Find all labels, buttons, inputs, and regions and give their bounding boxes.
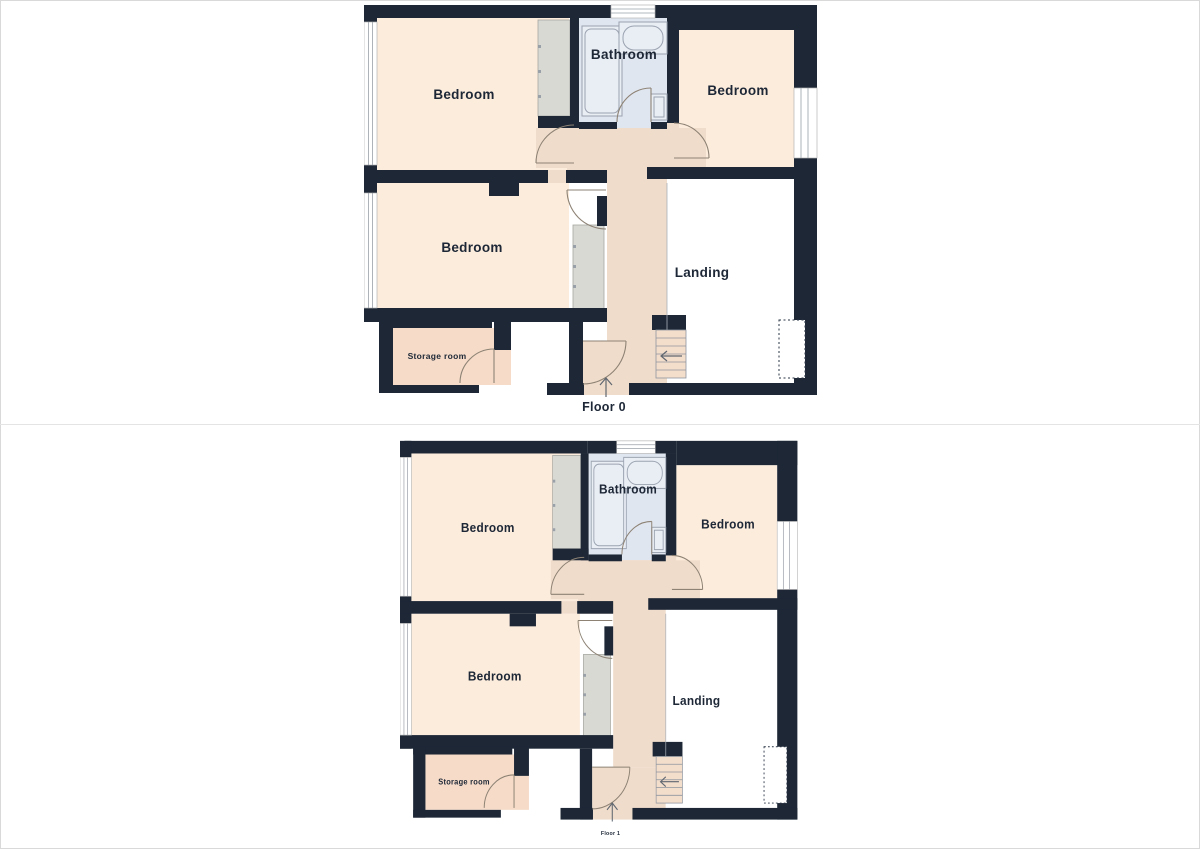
hallway-doorway bbox=[666, 555, 677, 599]
window-left-bottom bbox=[400, 623, 411, 735]
window-right bbox=[777, 521, 797, 589]
room-label-bedroom-top-left: Bedroom bbox=[433, 87, 494, 102]
floor-plan: Bedroom Bathroom Bedroom Bedroom Landing… bbox=[364, 0, 820, 415]
sink-icon bbox=[652, 527, 666, 552]
floor-panel-0: Bedroom Bathroom Bedroom Bedroom Landing… bbox=[0, 0, 1200, 425]
storage-door-zone bbox=[494, 350, 511, 385]
stairs bbox=[656, 756, 682, 803]
room-label-storage: Storage room bbox=[438, 777, 490, 786]
closet-mid bbox=[583, 654, 610, 737]
closet-top bbox=[538, 20, 570, 116]
stairs bbox=[656, 330, 686, 378]
hallway-column bbox=[613, 560, 666, 767]
floor-plan: Bedroom Bathroom Bedroom Bedroom Landing… bbox=[400, 436, 800, 839]
closet-top bbox=[553, 455, 581, 548]
room-label-landing: Landing bbox=[673, 693, 721, 708]
window-left-top bbox=[364, 22, 377, 165]
window-left-bottom bbox=[364, 193, 377, 308]
dashed-void-outline bbox=[764, 747, 787, 803]
room-label-bedroom-top-left: Bedroom bbox=[461, 521, 515, 536]
room-label-bedroom-mid-left: Bedroom bbox=[441, 240, 502, 255]
window-top bbox=[611, 5, 655, 18]
floor-label: Floor 1 bbox=[601, 831, 620, 837]
room-label-bedroom-mid-left: Bedroom bbox=[468, 669, 522, 684]
hallway-doorway bbox=[667, 123, 679, 168]
storage-door-zone bbox=[514, 776, 529, 810]
window-top bbox=[617, 441, 656, 454]
room-label-bedroom-top-right: Bedroom bbox=[707, 83, 768, 98]
floor-label: Floor 0 bbox=[582, 400, 626, 414]
room-label-landing: Landing bbox=[675, 265, 730, 280]
floor-panel-1: Bedroom Bathroom Bedroom Bedroom Landing… bbox=[0, 425, 1200, 848]
sink-icon bbox=[651, 94, 667, 120]
room-label-bathroom: Bathroom bbox=[591, 47, 657, 62]
room-label-bathroom: Bathroom bbox=[599, 482, 657, 497]
window-left-top bbox=[400, 457, 411, 596]
room-label-storage: Storage room bbox=[408, 351, 467, 361]
hallway-door-gap bbox=[561, 601, 578, 614]
window-right bbox=[794, 88, 817, 158]
shower-icon bbox=[591, 461, 626, 548]
hallway-column bbox=[607, 128, 667, 341]
shower-icon bbox=[582, 26, 622, 116]
hallway-door-gap bbox=[548, 170, 567, 183]
dashed-void-outline bbox=[779, 320, 805, 378]
closet-mid bbox=[573, 225, 604, 310]
room-label-bedroom-top-right: Bedroom bbox=[701, 517, 755, 532]
